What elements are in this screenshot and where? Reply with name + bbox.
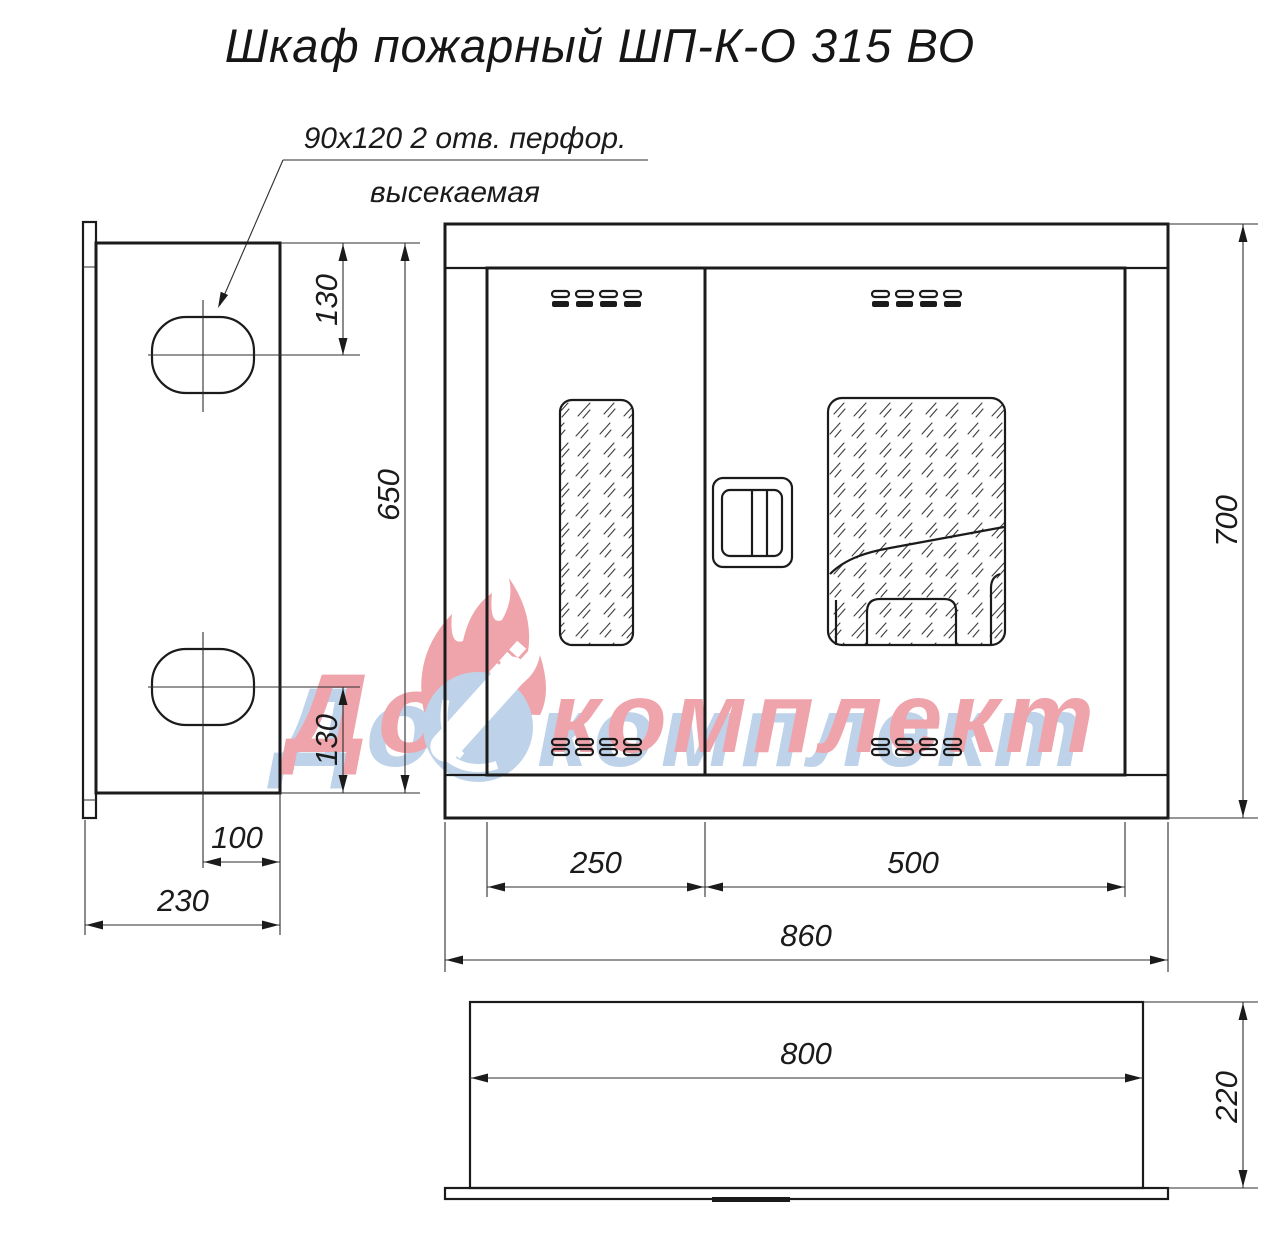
top-view: 800 220 (445, 1002, 1258, 1202)
leader-arrowhead-icon (218, 292, 228, 308)
svg-text:650: 650 (371, 469, 406, 521)
dim-left-door-width: 250 (569, 845, 622, 880)
watermark-logo (421, 578, 546, 782)
side-flange-joints (83, 267, 96, 800)
drawing-canvas: Дон Дон комплект комплект Шкаф пожарный … (0, 0, 1276, 1238)
dim-door-widths: 250 500 (487, 822, 1125, 897)
dim-right-door-width: 500 (887, 845, 939, 880)
left-door-top-vents (552, 291, 641, 307)
svg-text:700: 700 (1209, 495, 1244, 547)
svg-text:130: 130 (309, 274, 344, 326)
dim-front-width: 860 (445, 822, 1168, 972)
dim-side-hole-offset: 100 (203, 793, 280, 935)
perforation-note-line1: 90x120 2 отв. перфор. (304, 122, 627, 155)
left-door-window (560, 400, 633, 645)
drawing-page: Дон Дон комплект комплект Шкаф пожарный … (0, 0, 1276, 1238)
svg-text:130: 130 (309, 714, 344, 766)
watermark-word2: комплект (549, 662, 1100, 774)
right-door-top-vents (872, 291, 961, 307)
door-handle (713, 478, 792, 567)
dim-front-height: 700 (1168, 224, 1258, 818)
svg-text:860: 860 (780, 918, 832, 953)
dim-side-hole-top: 130 (280, 243, 420, 355)
svg-text:100: 100 (211, 820, 263, 855)
drawing-title: Шкаф пожарный ШП-К-О 315 ВО (225, 19, 975, 72)
svg-text:800: 800 (780, 1036, 832, 1071)
top-view-bracket (712, 1197, 790, 1202)
svg-text:230: 230 (156, 883, 209, 918)
side-flange-strip (83, 222, 96, 818)
note-leader-line (220, 160, 283, 305)
top-view-body (470, 1002, 1143, 1188)
front-view: 700 250 500 860 (445, 224, 1258, 972)
side-view: 130 650 130 100 230 (83, 222, 420, 935)
right-door-window (828, 398, 1005, 645)
side-panel-outline (96, 243, 280, 793)
svg-text:220: 220 (1209, 1071, 1244, 1124)
dim-top-width: 800 (470, 1036, 1143, 1083)
top-view-back-flange (445, 1188, 1168, 1199)
perforation-note: 90x120 2 отв. перфор. высекаемая (218, 122, 648, 308)
dim-top-depth: 220 (1143, 1002, 1258, 1188)
perforation-note-line2: высекаемая (370, 176, 540, 209)
